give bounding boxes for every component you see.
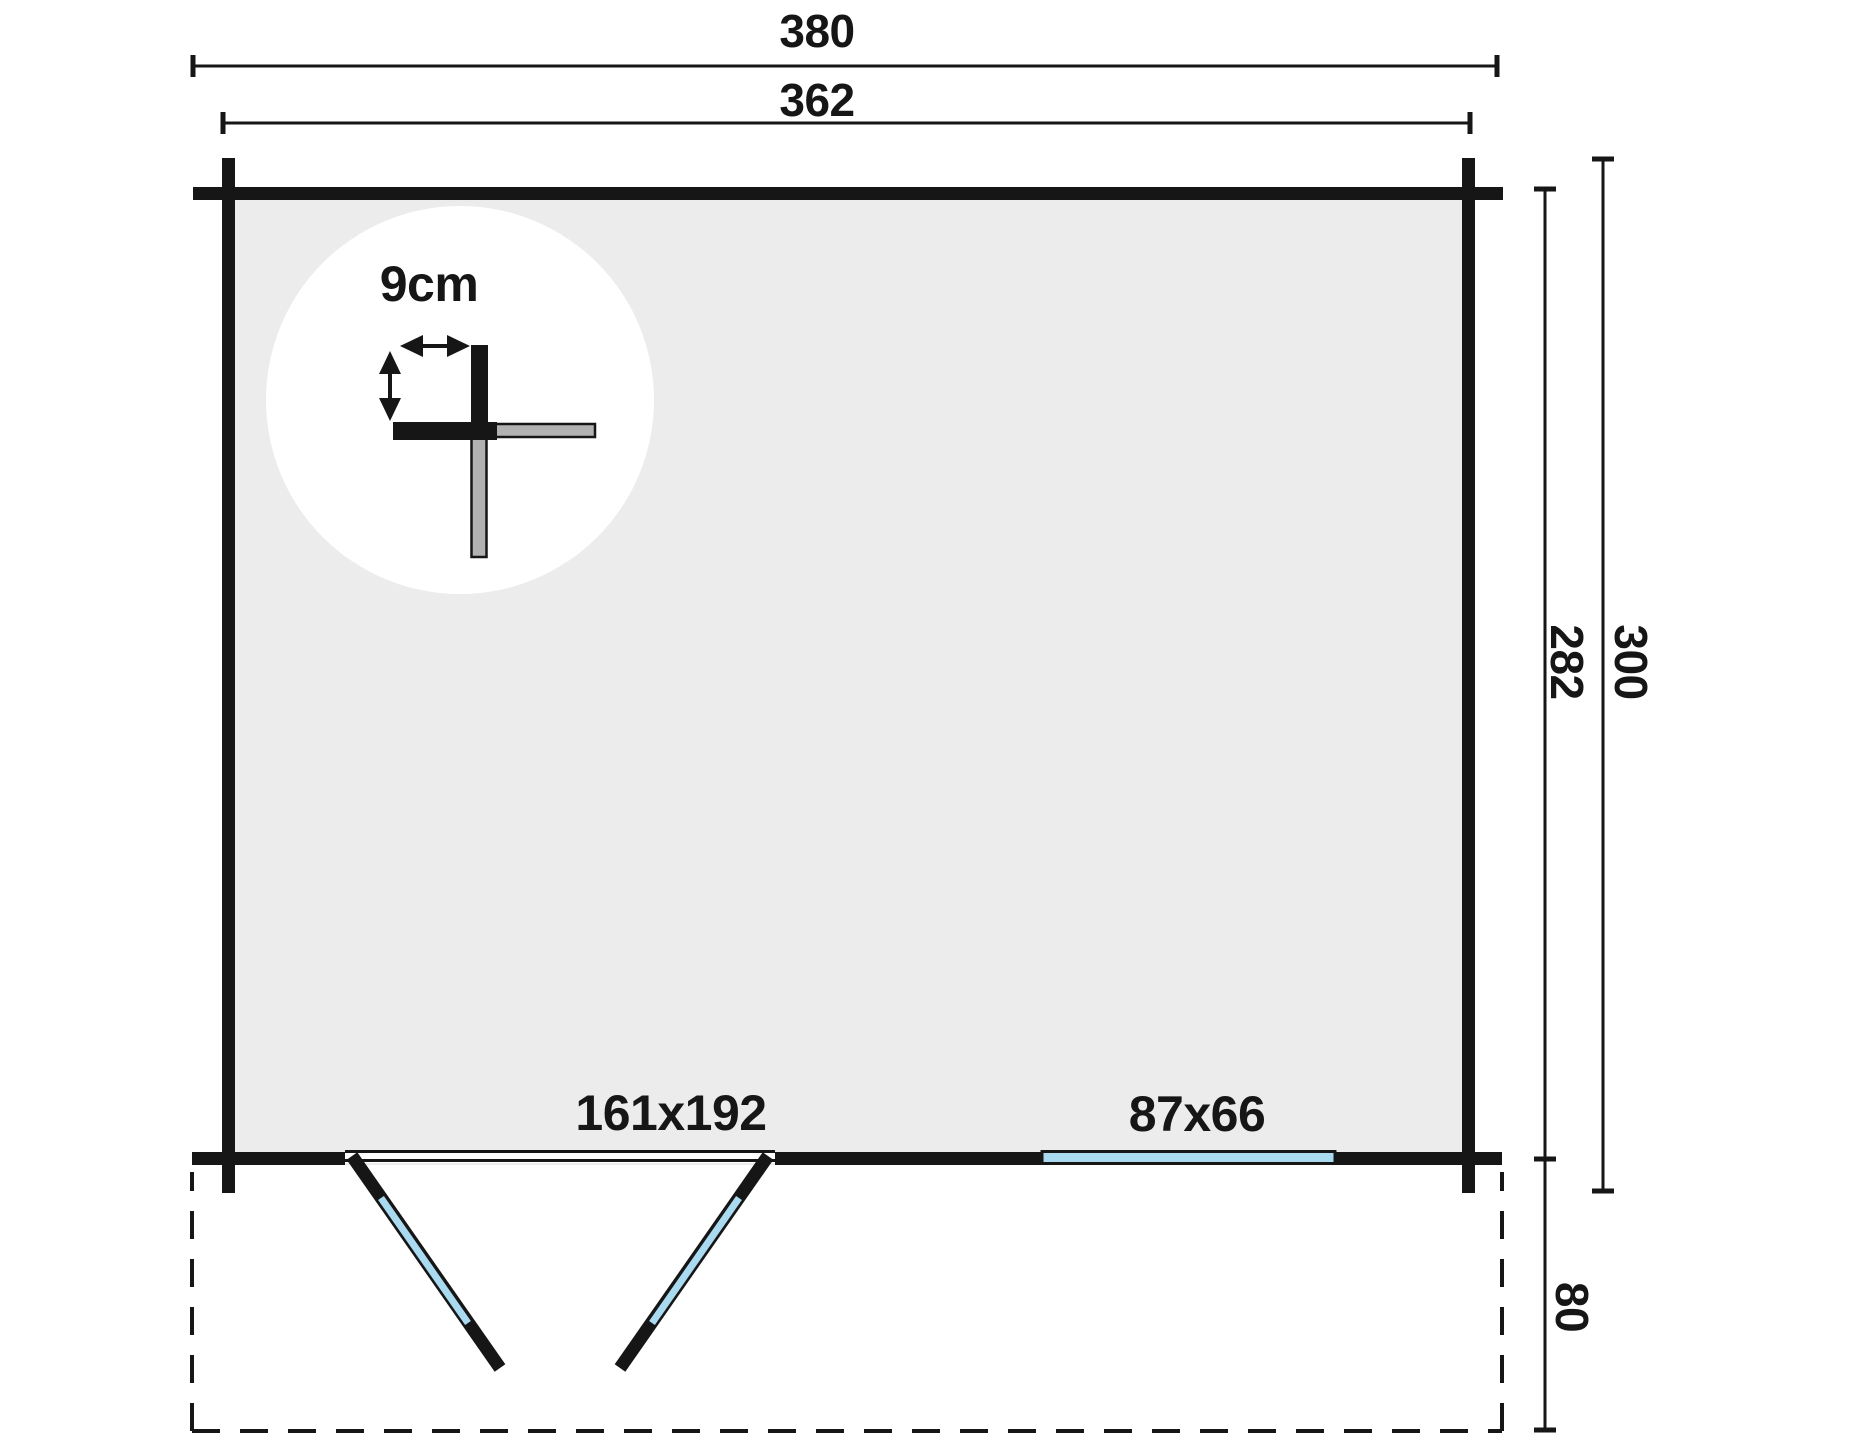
door-leaf-right [620,1156,768,1368]
window [1042,1152,1335,1164]
door-leaf-left-glass [381,1198,468,1323]
window-size-label: 87x66 [1129,1089,1266,1139]
door-size-label: 161x192 [575,1088,766,1138]
door-leaf-left [352,1156,500,1368]
floor-plan-drawing [0,0,1854,1440]
log-end-horizontal [487,424,595,437]
dim-label-wall-depth: 282 [1544,624,1590,699]
log-end-vertical [472,438,487,557]
floor-plan: 380 362 282 300 80 9cm 161x192 87x66 [0,0,1854,1440]
dim-label-outer-depth: 300 [1608,624,1654,699]
log-wall-horizontal [393,422,497,440]
door-leaf-right-glass [652,1198,739,1323]
dim-label-wall-width: 362 [779,77,854,123]
dim-label-terrace-depth: 80 [1549,1282,1595,1332]
dim-label-outer-width: 380 [779,8,854,54]
wall-thickness-label: 9cm [380,259,479,309]
double-door [345,1150,775,1368]
